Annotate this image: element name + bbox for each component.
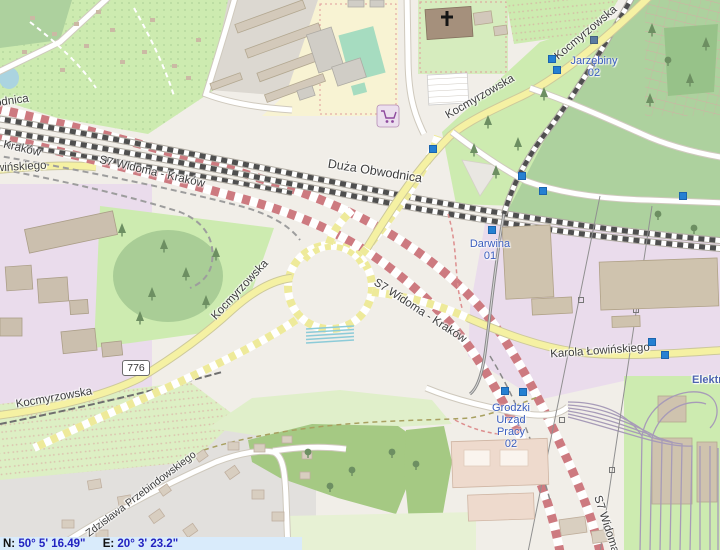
bus-stop-marker[interactable] bbox=[519, 388, 527, 396]
bus-stop-marker[interactable] bbox=[553, 66, 561, 74]
railway-halt-marker[interactable] bbox=[590, 36, 598, 44]
map-graphics-layer bbox=[0, 0, 720, 550]
industrial-name-label: Elektr bbox=[692, 374, 720, 386]
bus-stop-marker[interactable] bbox=[488, 226, 496, 234]
bus-stop-marker[interactable] bbox=[429, 145, 437, 153]
bus-stop-label-jarzebiny: Jarzębiny 02 bbox=[570, 55, 617, 79]
bus-stop-marker[interactable] bbox=[501, 387, 509, 395]
lon-label: E: bbox=[103, 538, 115, 550]
lat-label: N: bbox=[3, 538, 15, 550]
bus-stop-label-darwina: Darwina 01 bbox=[470, 238, 510, 262]
bus-stop-marker[interactable] bbox=[539, 187, 547, 195]
map-canvas[interactable]: Duża Obwodnica odnica S7 Widoma - Kraków… bbox=[0, 0, 720, 550]
bus-stop-marker[interactable] bbox=[661, 351, 669, 359]
lat-value: 50° 5' 16.49" bbox=[18, 538, 85, 550]
bus-stop-label-grodzki-urzad-pracy: Grodzki Urząd Pracy 02 bbox=[492, 402, 530, 450]
bus-stop-marker[interactable] bbox=[648, 338, 656, 346]
coordinates-bar: N: 50° 5' 16.49" E: 20° 3' 23.2" bbox=[0, 537, 302, 550]
bus-stop-marker[interactable] bbox=[548, 55, 556, 63]
route-shield-776: 776 bbox=[122, 360, 150, 376]
bus-stop-marker[interactable] bbox=[679, 192, 687, 200]
bus-stop-marker[interactable] bbox=[518, 172, 526, 180]
lon-value: 20° 3' 23.2" bbox=[117, 538, 178, 550]
